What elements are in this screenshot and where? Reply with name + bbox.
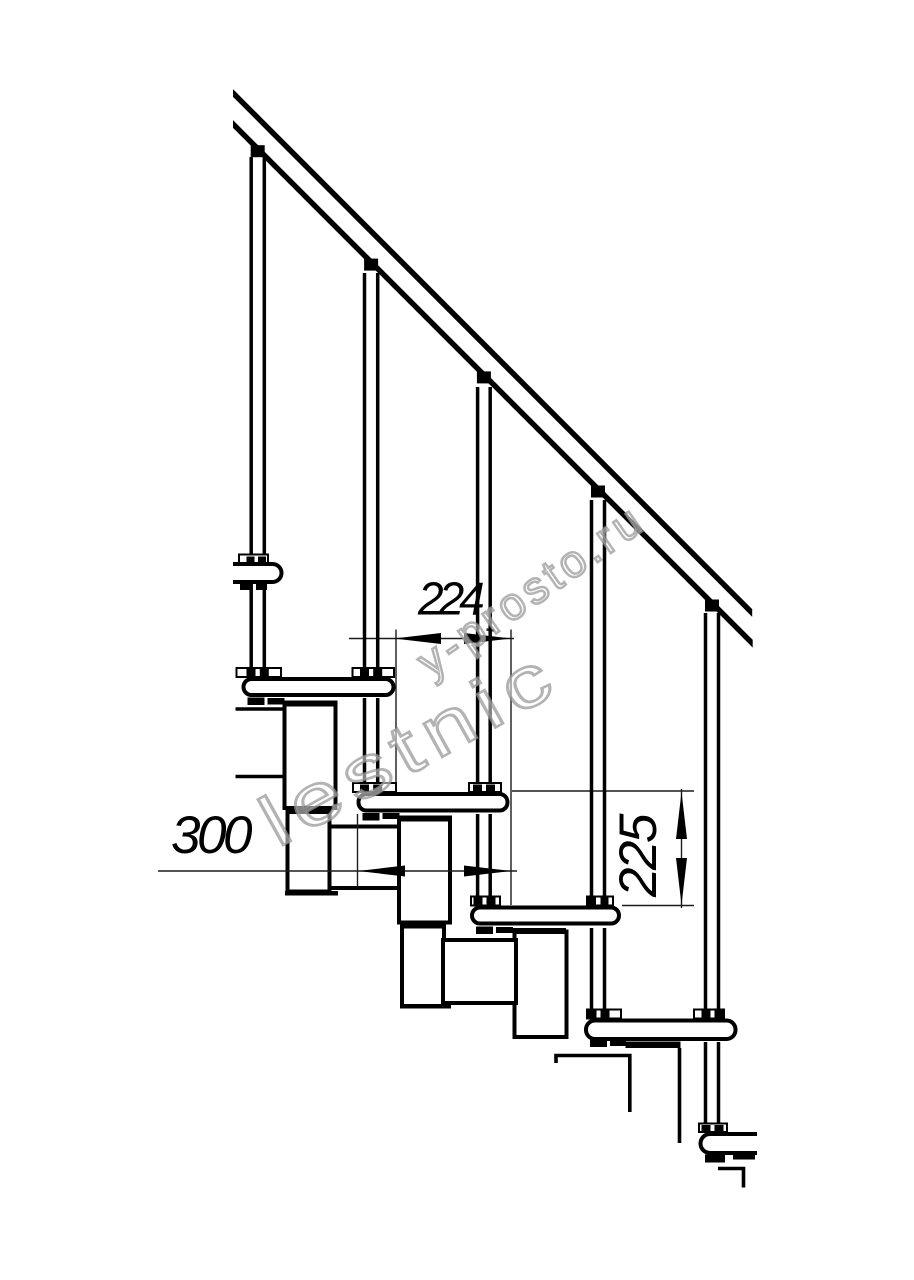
svg-text:225: 225 [609,813,668,898]
svg-text:300: 300 [171,806,253,865]
